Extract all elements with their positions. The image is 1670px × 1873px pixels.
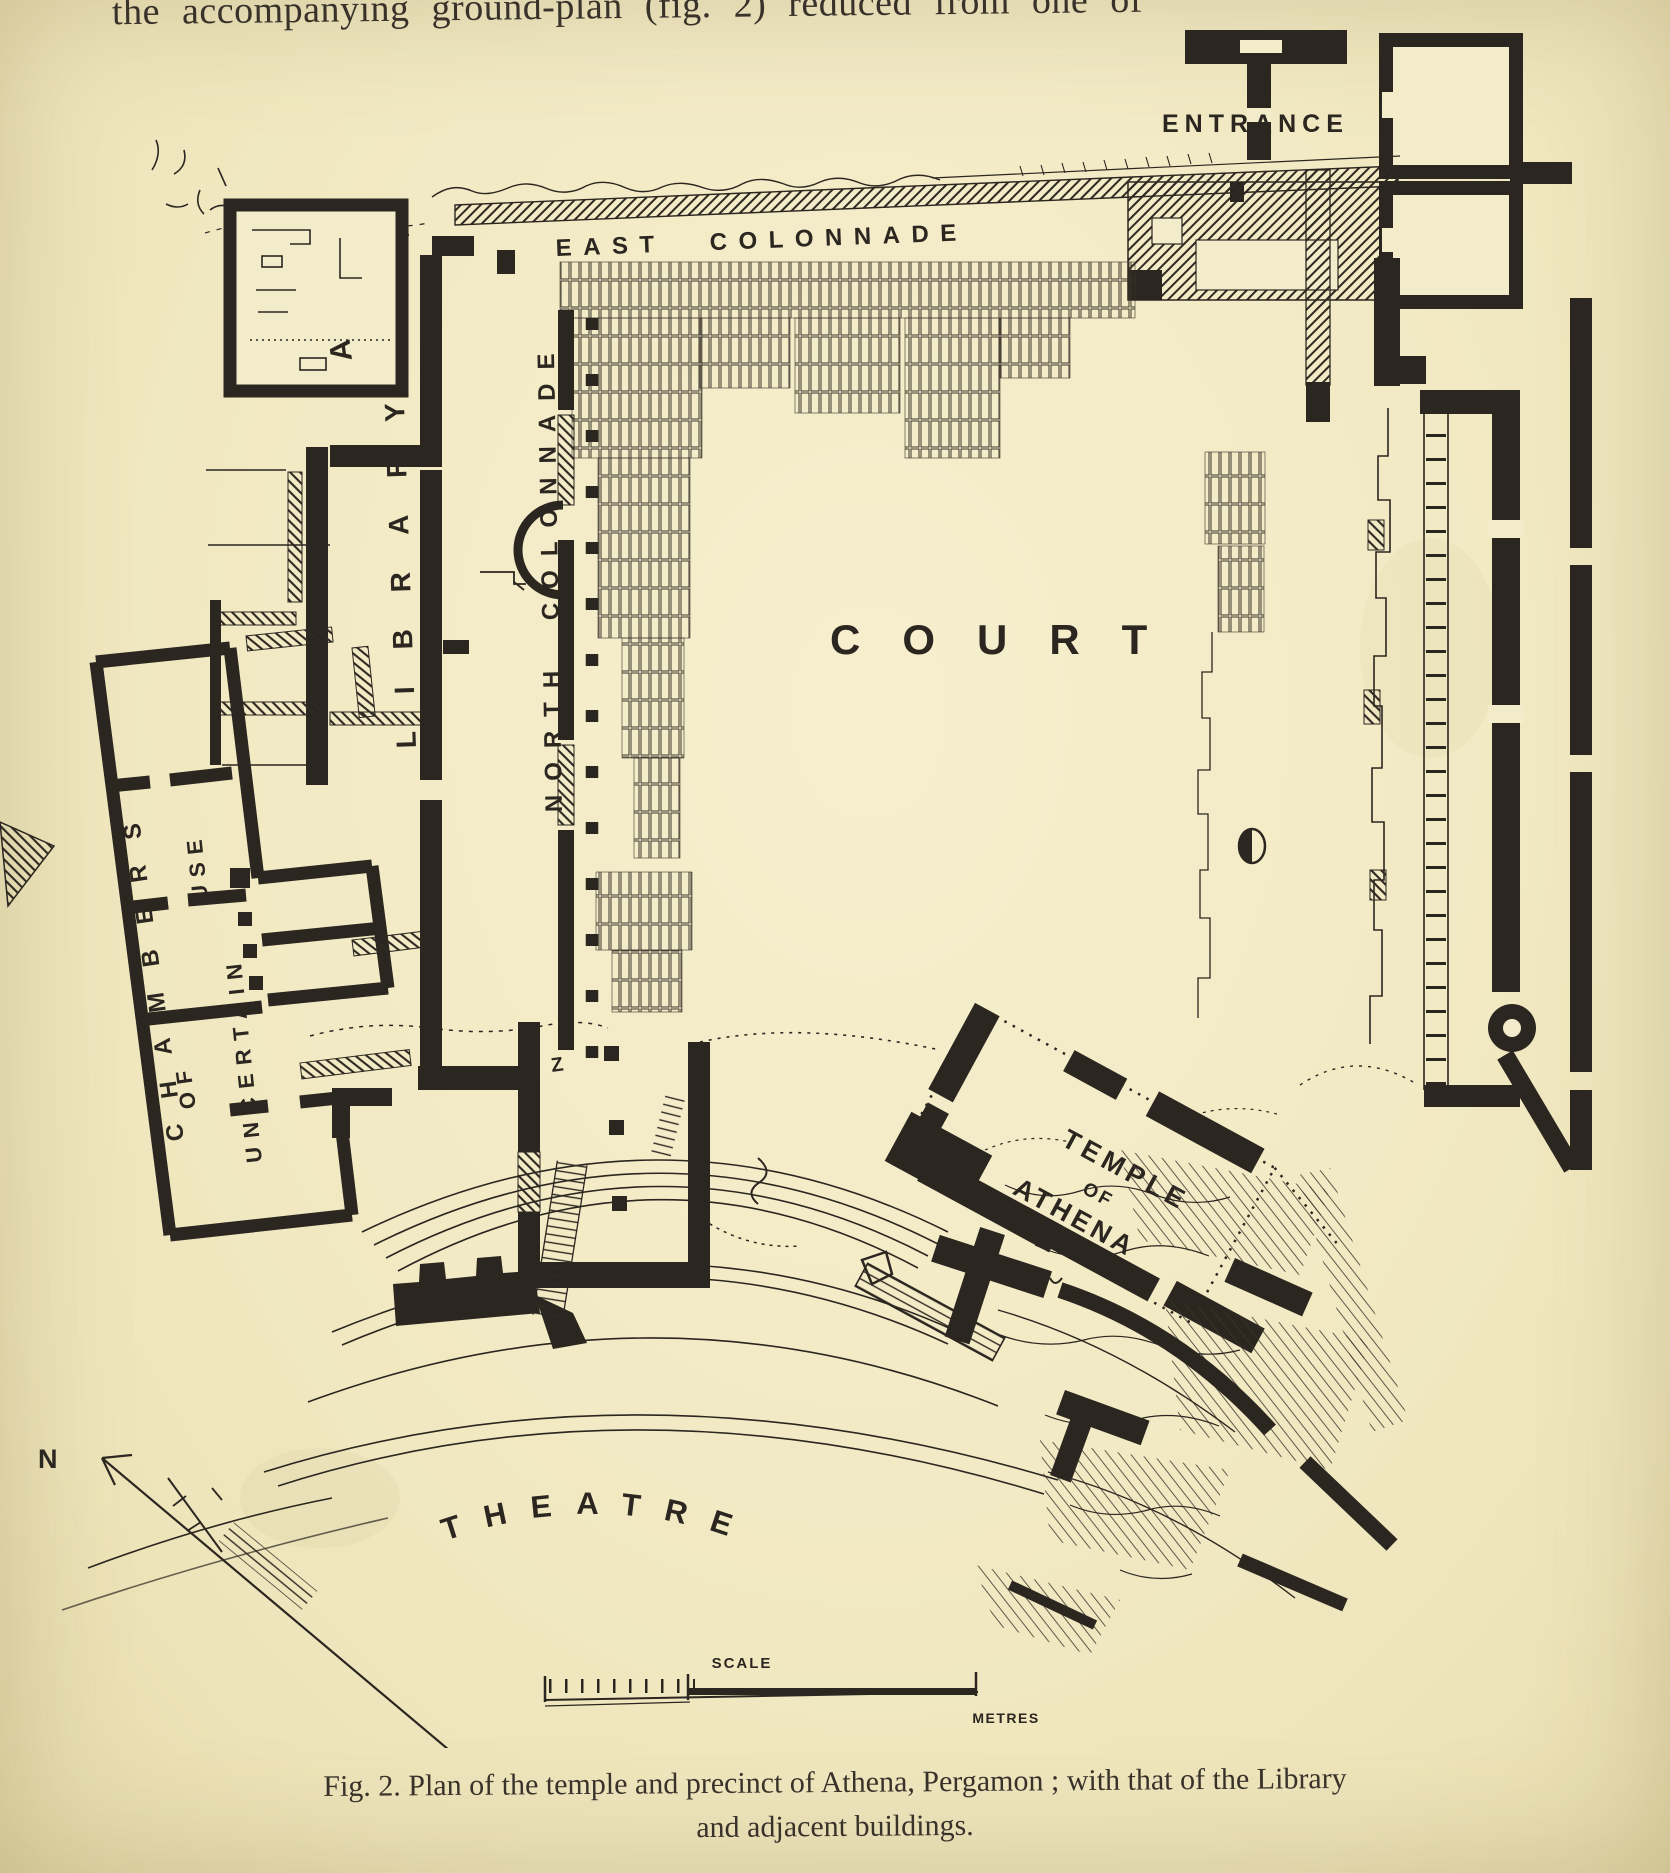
chambers-of-label: OF: [170, 1061, 201, 1111]
figure-caption-line2: and adjacent buildings.: [0, 1803, 1670, 1850]
library-label: LIBRARY: [378, 366, 422, 749]
north-colonnade-label: NORTH COLONNADE: [533, 339, 568, 812]
scale-label: SCALE: [712, 1655, 773, 1672]
entrance-building: ENTRANCE: [1128, 30, 1572, 422]
metres-label: METRES: [972, 1710, 1039, 1726]
room-a-label: A: [324, 338, 359, 364]
east-colonnade-label: EAST COLONNADE: [555, 219, 968, 262]
theatre-label: THEATRE: [437, 1486, 760, 1551]
library-room-a: A: [230, 205, 402, 391]
entrance-label: ENTRANCE: [1162, 110, 1349, 138]
edge-fragment: [0, 822, 54, 906]
scale-bar: SCALE METRES: [545, 1655, 1040, 1726]
book-page: the accompanying ground-plan (fig. 2) re…: [0, 0, 1670, 1873]
figure-caption-line1: Fig. 2. Plan of the temple and precinct …: [0, 1759, 1670, 1806]
library-rooms: [206, 445, 526, 785]
ground-plan-figure: ENTRANCE EAST COLONNADE: [0, 28, 1670, 1748]
court-label: COURT: [830, 616, 1189, 663]
compass-north-label: N: [38, 1444, 58, 1474]
chambers-use-label: USE: [181, 831, 213, 902]
svg-text:THEATRE: THEATRE: [437, 1486, 760, 1551]
z-mark-label: Z: [550, 1053, 565, 1076]
